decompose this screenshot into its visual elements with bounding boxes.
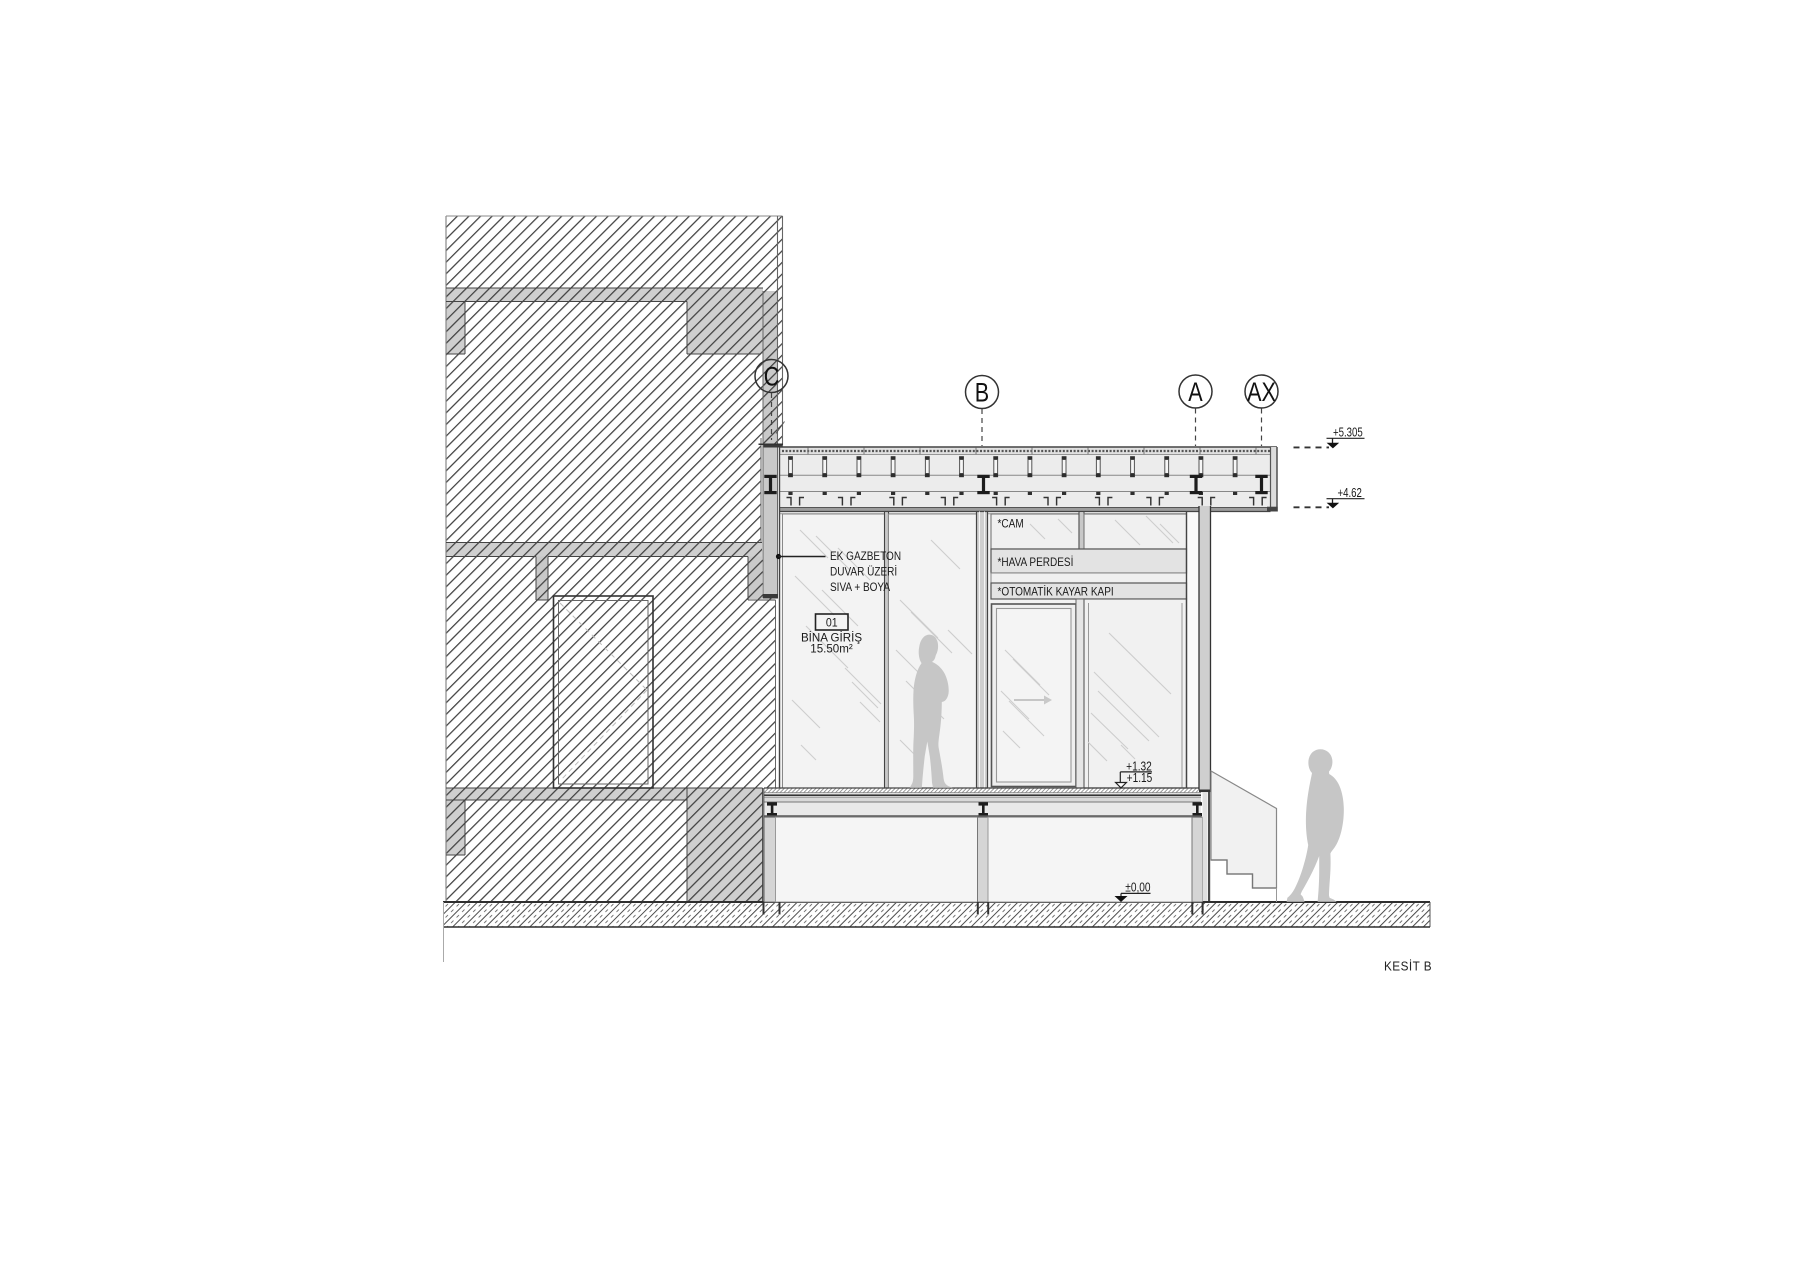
svg-text:*OTOMATİK KAYAR KAPI: *OTOMATİK KAYAR KAPI bbox=[998, 585, 1114, 599]
svg-text:B: B bbox=[975, 378, 989, 408]
svg-text:AX: AX bbox=[1247, 378, 1276, 408]
svg-text:A: A bbox=[1188, 378, 1203, 408]
svg-text:KESİT B: KESİT B bbox=[1384, 959, 1432, 974]
svg-text:DUVAR ÜZERİ: DUVAR ÜZERİ bbox=[830, 565, 897, 579]
svg-text:SIVA + BOYA: SIVA + BOYA bbox=[830, 581, 891, 594]
svg-text:*CAM: *CAM bbox=[998, 518, 1024, 531]
svg-text:±0,00: ±0,00 bbox=[1125, 880, 1151, 894]
svg-text:01: 01 bbox=[826, 617, 838, 630]
svg-text:*HAVA PERDESİ: *HAVA PERDESİ bbox=[998, 555, 1074, 569]
svg-text:EK GAZBETON: EK GAZBETON bbox=[830, 550, 901, 563]
svg-text:15.50m²: 15.50m² bbox=[810, 641, 852, 655]
svg-text:C: C bbox=[764, 362, 780, 392]
svg-text:+1.15: +1.15 bbox=[1127, 771, 1153, 785]
